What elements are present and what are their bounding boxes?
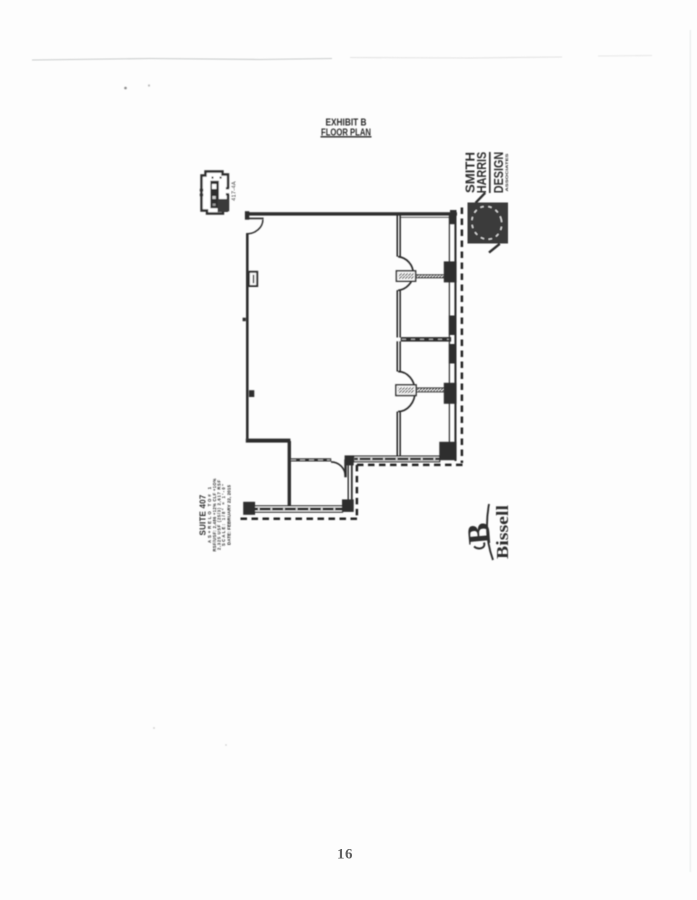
svg-text:SCALE: 1/8" = 1’-0": SCALE: 1/8" = 1’-0" — [221, 484, 226, 546]
svg-text:ASSOCIATES: ASSOCIATES — [505, 153, 509, 192]
svg-text:16: 16 — [337, 847, 353, 863]
svg-text:HARRIS: HARRIS — [474, 151, 489, 193]
svg-text:DESIGN: DESIGN — [491, 152, 506, 194]
svg-text:Bissell: Bissell — [493, 505, 512, 559]
svg-text:DATE: FEBRUARY 22, 2015: DATE: FEBRUARY 22, 2015 — [227, 485, 232, 545]
svg-text:417-4A: 417-4A — [232, 181, 238, 201]
svg-text:B: B — [460, 522, 498, 546]
